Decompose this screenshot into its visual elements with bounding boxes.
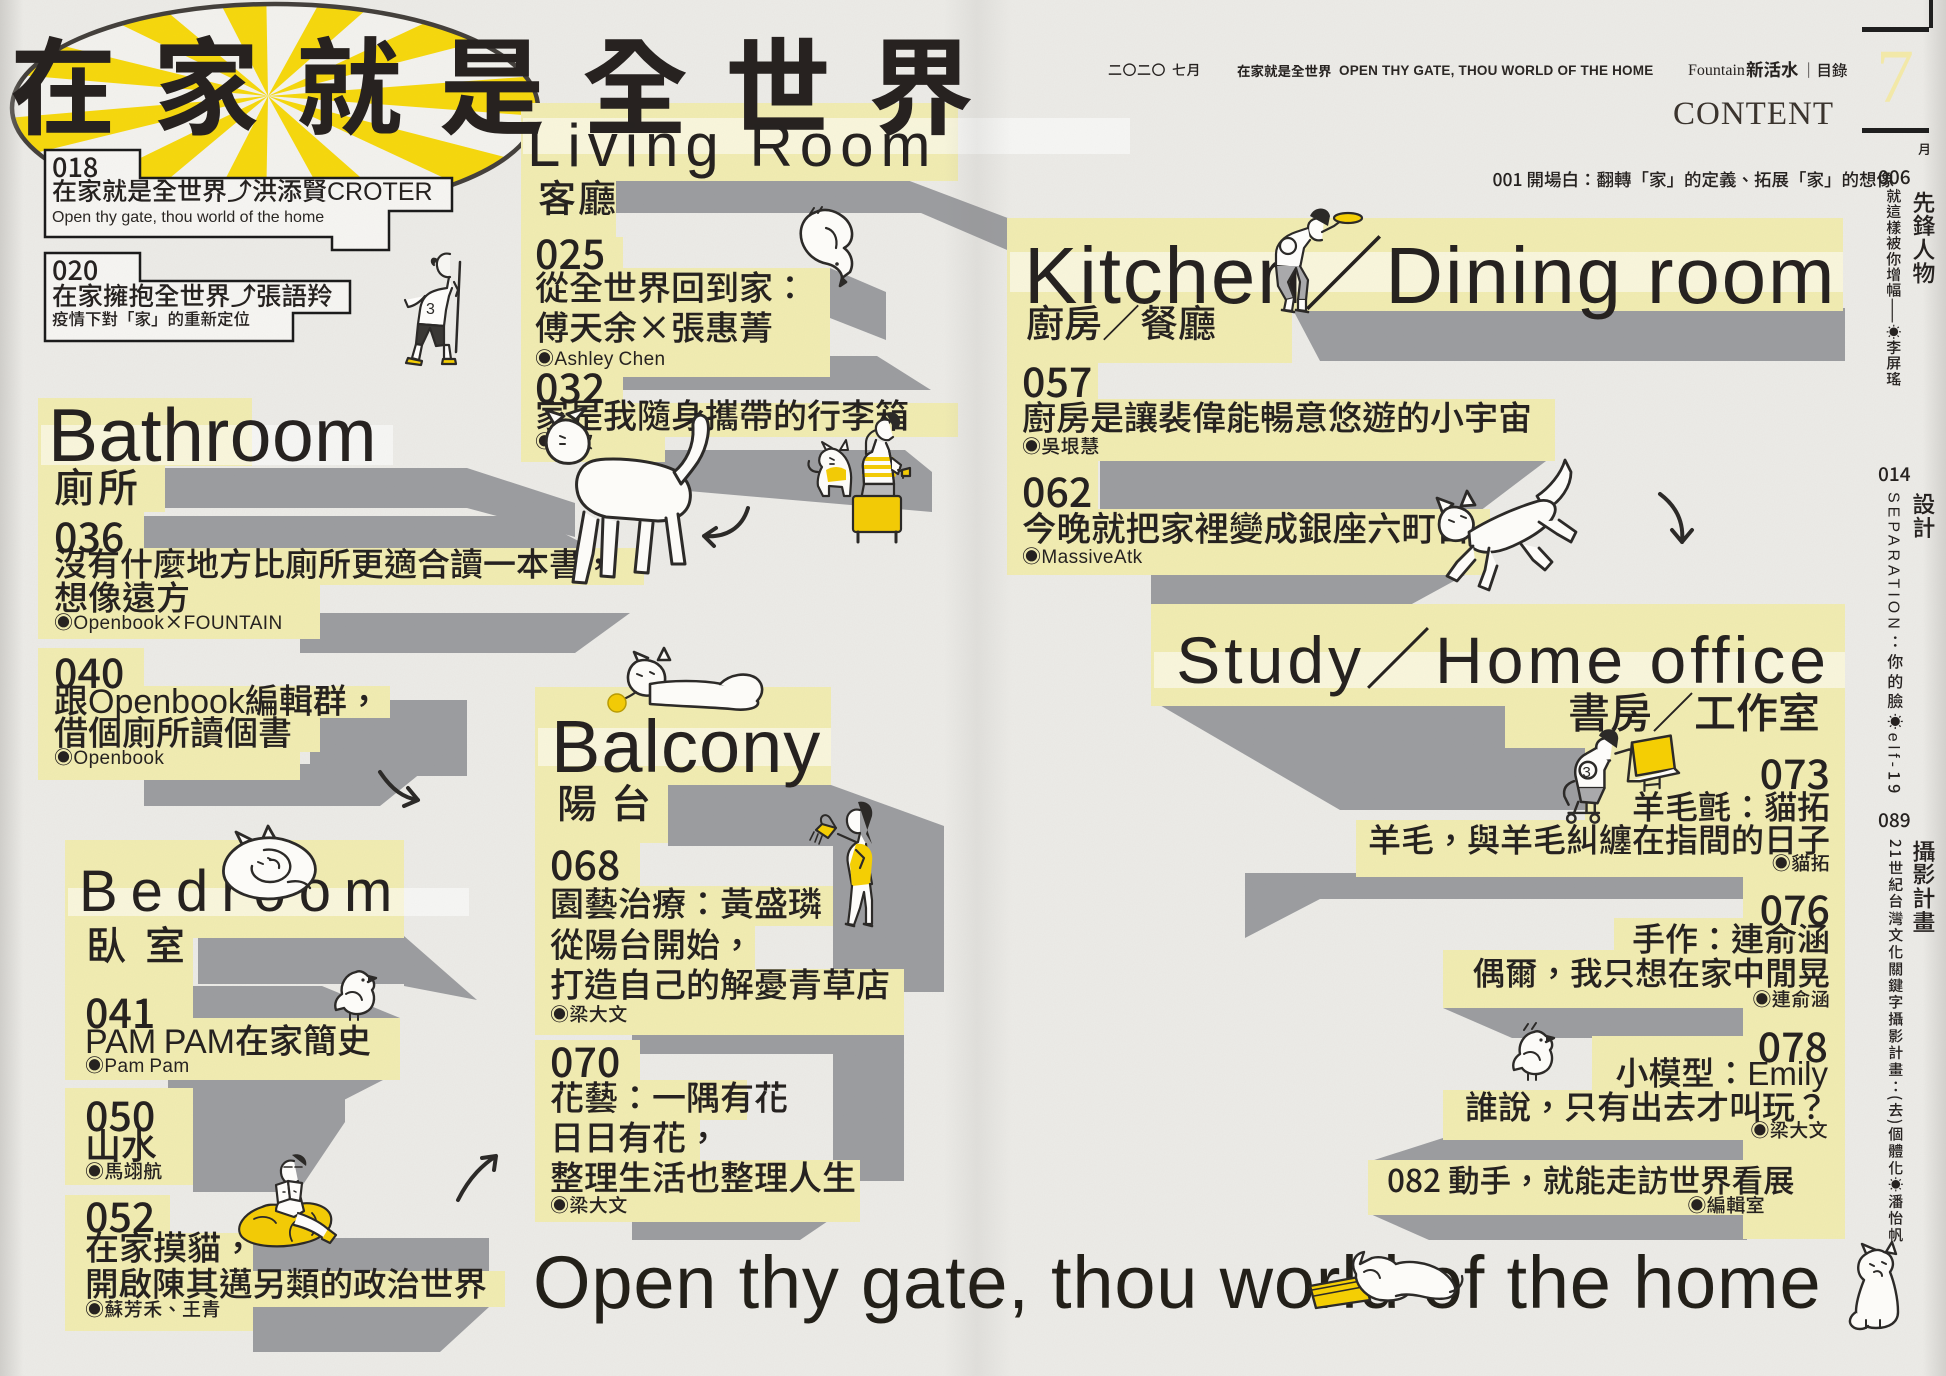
svg-text:3: 3: [426, 301, 435, 318]
